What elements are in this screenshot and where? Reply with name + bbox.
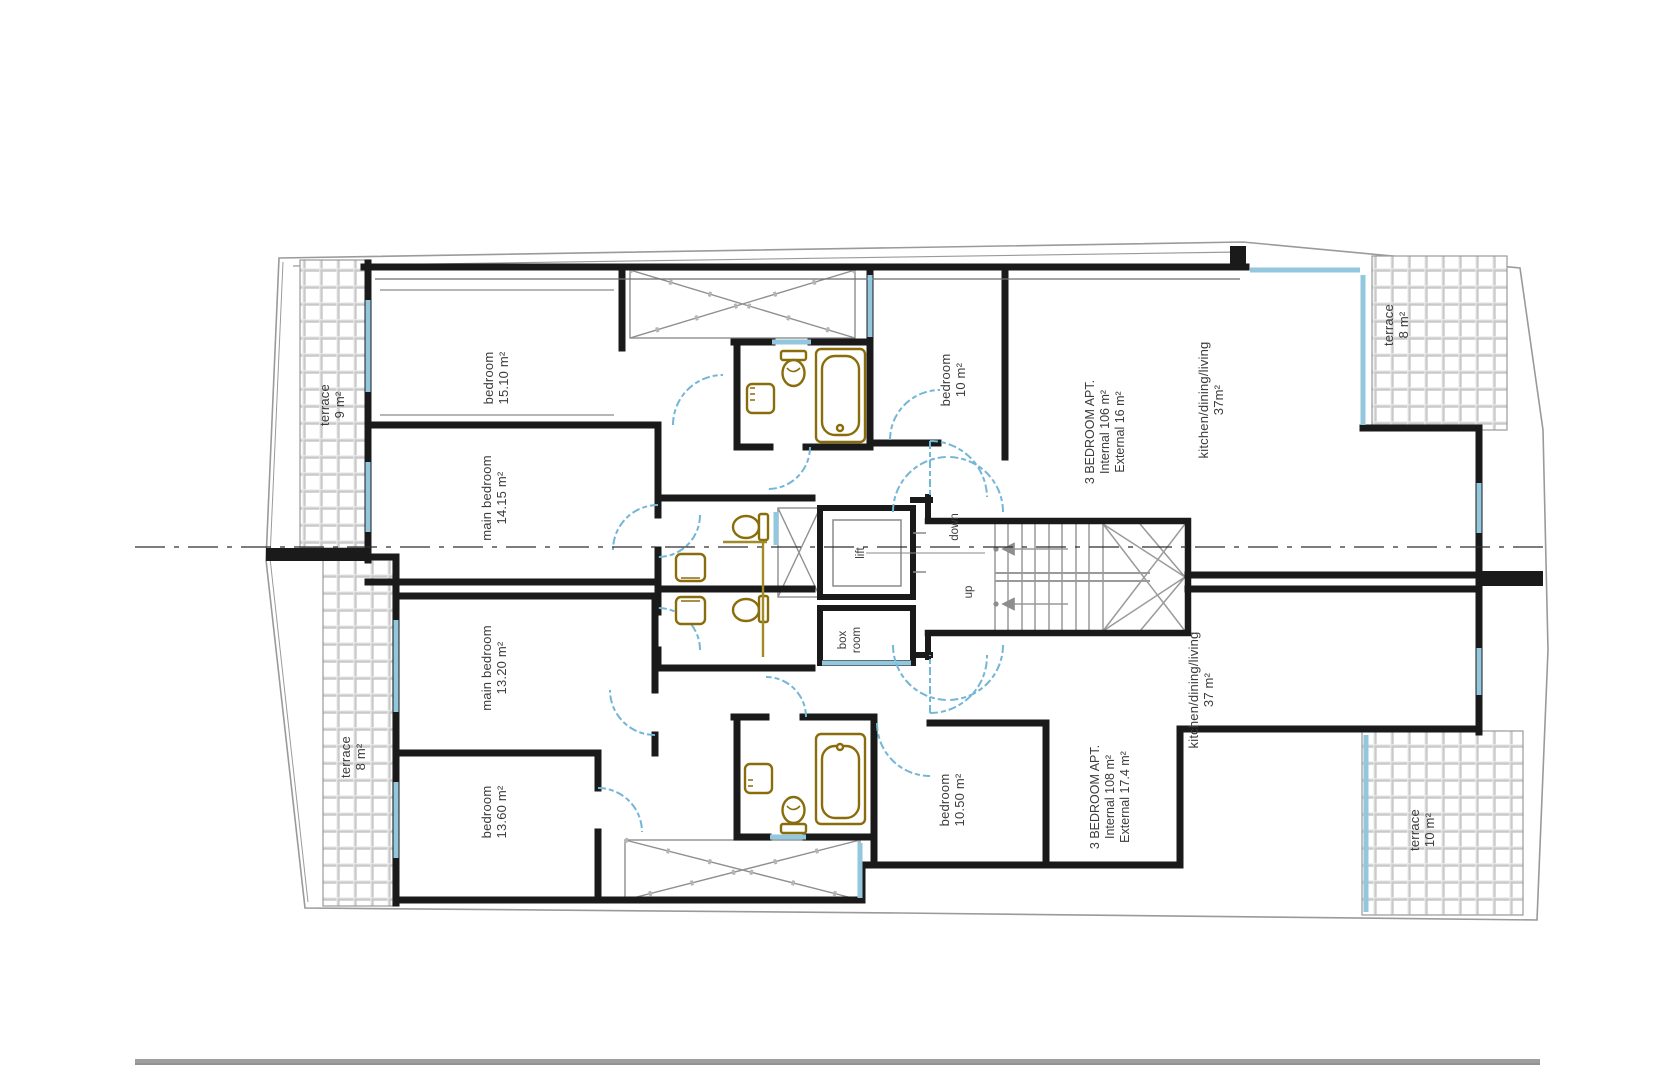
room-label-terrace-10: terrace10 m² [1407, 809, 1437, 851]
box-room-label: boxroom [837, 627, 863, 653]
walls [364, 263, 1479, 903]
apt-label-upper: 3 BEDROOM APT.Internal 106 m²External 16… [1083, 380, 1127, 484]
sink-icon [676, 554, 705, 581]
floor-plan-page: terrace9 m² bedroom15.10 m² main bedroom… [0, 0, 1662, 1080]
toilet-icon [781, 797, 806, 833]
toilet-icon [781, 351, 806, 386]
room-label-bedroom-13-60: bedroom13.60 m² [479, 785, 509, 838]
room-label-bedroom-10-50: bedroom10.50 m² [937, 773, 967, 826]
room-label-bedroom-10: bedroom10 m² [938, 354, 968, 407]
apt-label-lower: 3 BEDROOM APT.Internal 108 m²External 17… [1088, 745, 1132, 849]
sink-icon [745, 764, 772, 793]
room-label-main-bedroom-14-15: main bedroom14.15 m² [479, 455, 509, 541]
terrace-bottom-right [1362, 731, 1523, 915]
room-label-bedroom-15-10: bedroom15.10 m² [481, 351, 511, 404]
floor-plan-canvas: terrace9 m² bedroom15.10 m² main bedroom… [0, 0, 1662, 1080]
bathtub-icon [816, 349, 865, 442]
terrace-bottom-left [323, 558, 393, 906]
staircase [993, 524, 1185, 631]
wall-ticks [266, 246, 1543, 586]
sink-icon [676, 597, 705, 624]
toilet-icon [733, 514, 768, 540]
bathtub-icon [816, 734, 865, 824]
sink-icon [747, 384, 774, 413]
lift-label: lift [855, 546, 867, 558]
room-label-kitchen-upper: kitchen/dining/living37m² [1196, 342, 1226, 459]
stair-label-down: down [949, 513, 961, 541]
room-label-main-bedroom-13-20: main bedroom13.20 m² [479, 625, 509, 711]
stair-label-up: up [963, 586, 975, 599]
